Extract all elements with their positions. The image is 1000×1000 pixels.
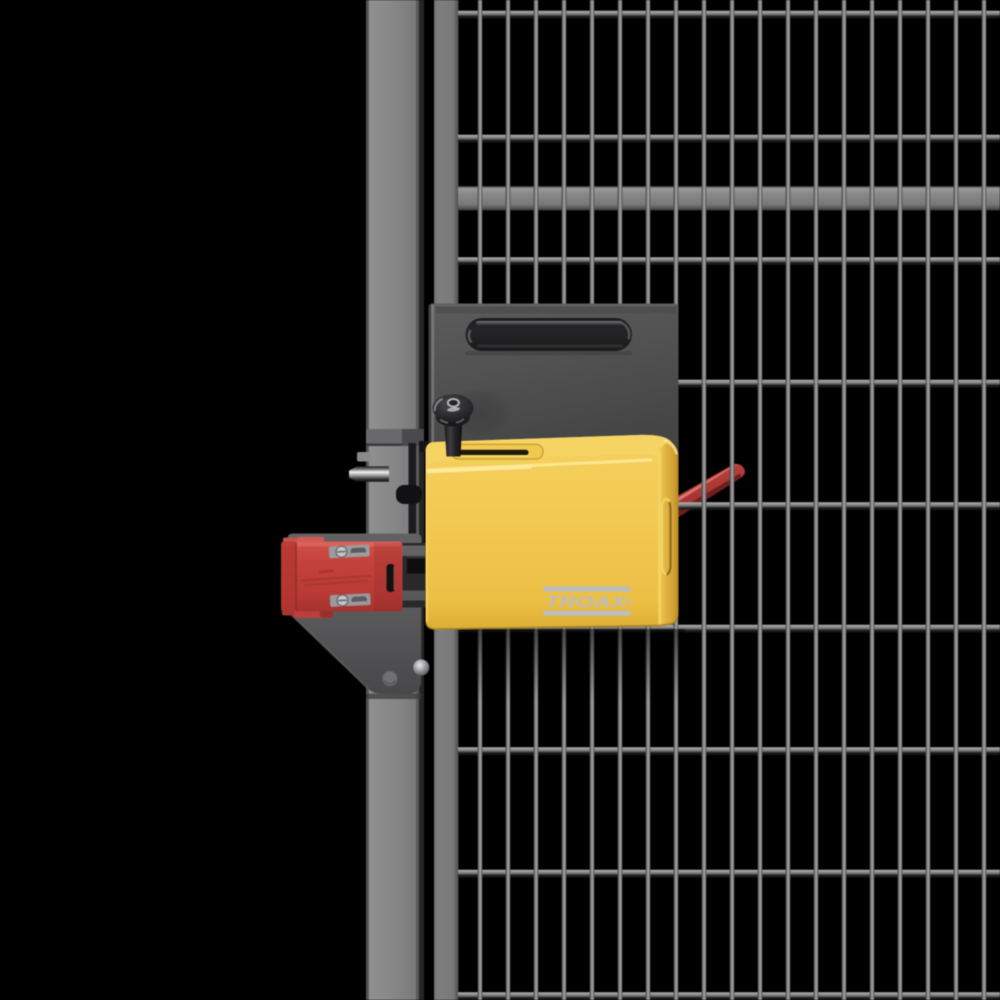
svg-text:TROAX: TROAX bbox=[544, 594, 629, 611]
